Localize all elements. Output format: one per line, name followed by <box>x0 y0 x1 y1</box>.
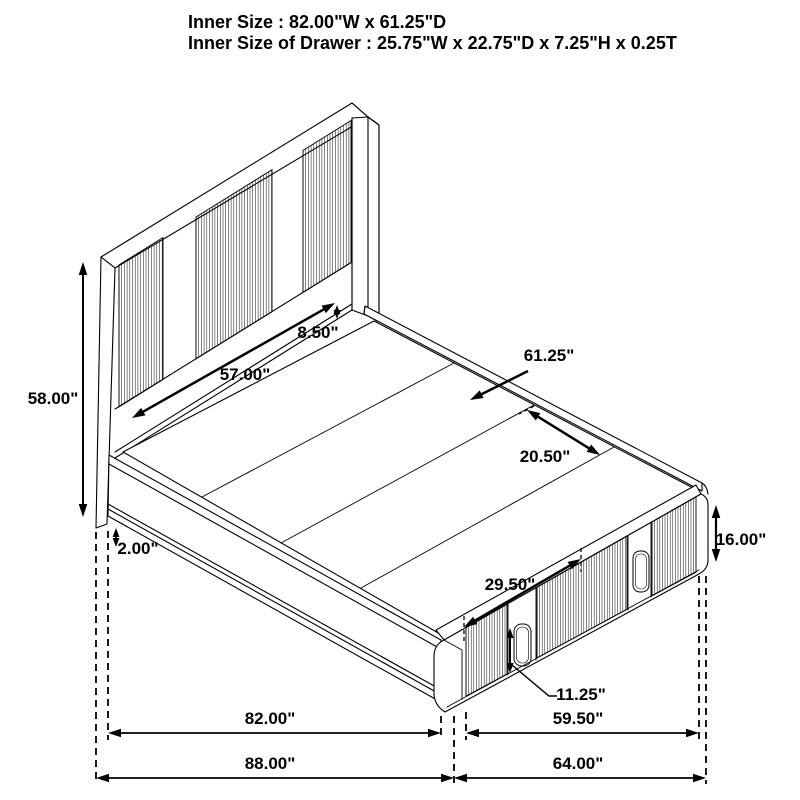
dim-label-drawer-front-height: 11.25" <box>556 685 606 704</box>
bed-dimension-diagram: Inner Size : 82.00"W x 61.25"D Inner Siz… <box>0 0 800 800</box>
title-line-1: Inner Size : 82.00"W x 61.25"D <box>188 12 446 32</box>
title-line-2: Inner Size of Drawer : 25.75"W x 22.75"D… <box>188 33 677 53</box>
dim-label-inner-length: 82.00" <box>245 709 296 728</box>
dim-label-slat-spacing: 20.50" <box>520 447 571 466</box>
dim-label-headboard-rail-height: 8.50" <box>297 323 338 342</box>
dim-label-footboard-inner-width: 59.50" <box>553 709 604 728</box>
bed-dimension-diagram-page: Inner Size : 82.00"W x 61.25"D Inner Siz… <box>0 0 800 800</box>
dim-label-footboard-height: 16.00" <box>716 530 767 549</box>
dim-label-overall-width: 64.00" <box>553 754 604 773</box>
dim-label-headboard-height: 58.00" <box>28 389 79 408</box>
dim-label-drawer-span: 29.50" <box>485 575 536 594</box>
dim-label-overall-length: 88.00" <box>245 754 296 773</box>
dim-label-headboard-panel-width: 57.00" <box>220 365 271 384</box>
dim-label-mattress-depth: 61.25" <box>524 346 575 365</box>
dim-label-rail-floor-gap: 2.00" <box>117 539 158 558</box>
